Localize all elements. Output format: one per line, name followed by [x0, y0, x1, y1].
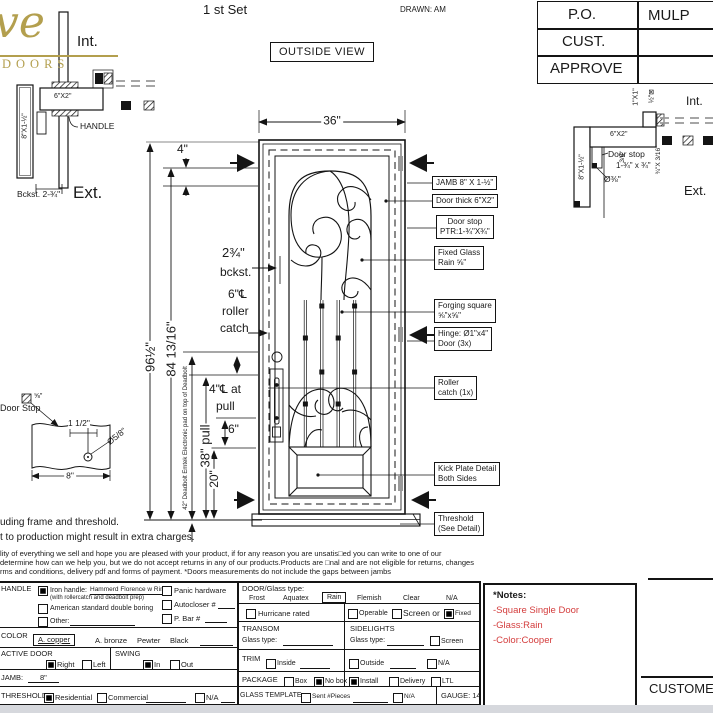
panic-label: Panic hardware: [174, 587, 226, 595]
color-pewter-option: Pewter: [137, 637, 160, 645]
trim-outside-label: Outside: [360, 660, 384, 667]
notes-box: *Notes: -Square Single Door -Glass:Rain …: [483, 583, 637, 707]
iron-handle-label: Iron handle:: [50, 587, 87, 594]
swing-in-label: In: [154, 661, 160, 669]
threshold-label: THRESHOLD: [1, 692, 47, 700]
operable-checkbox: [348, 609, 358, 619]
template-sent-checkbox: [301, 693, 311, 703]
iron-handle-value: Hammerd Florence w Rings: [90, 587, 171, 595]
american-boring-label: American standard double boring: [50, 605, 153, 612]
notes-line1: -Square Single Door: [493, 606, 579, 616]
sidelights-glass-label: Glass type:: [350, 637, 385, 644]
drawing-sheet: { "header": {"set_label": "1 st Set", "d…: [0, 0, 713, 713]
package-label: PACKAGE: [242, 676, 278, 684]
notes-title: *Notes:: [493, 591, 526, 601]
package-ltl-checkbox: [431, 677, 441, 687]
glass-frost-option: Frost: [249, 595, 265, 602]
sidelights-glass-blank: [387, 637, 424, 646]
glass-rain-option: Rain: [322, 592, 346, 603]
package-install-label: Install: [360, 678, 378, 685]
trim-inside-checkbox: [266, 659, 276, 669]
trim-na-label: N/A: [438, 660, 450, 667]
notes-line2: -Glass:Rain: [493, 621, 543, 631]
transom-label: TRANSOM: [242, 625, 280, 633]
package-nobox-label: No box: [325, 678, 347, 685]
autocloser-label: Autocloser #: [174, 601, 216, 609]
trim-inside-label: Inside: [277, 660, 296, 667]
glass-template-label: GLASS TEMPLATE: [240, 692, 302, 699]
glass-flemish-option: Flemish: [357, 595, 382, 602]
autocloser-checkbox: [162, 600, 172, 610]
threshold-commercial-checkbox: [97, 693, 107, 703]
screen-or-checkbox: [392, 609, 402, 619]
template-sent-label: Sent #Pieces: [312, 694, 350, 701]
package-nobox-checkbox: [314, 677, 324, 687]
color-label: COLOR: [1, 632, 28, 640]
sidelights-label: SIDELIGHTS: [350, 625, 395, 633]
hurricane-checkbox: [246, 609, 256, 619]
iron-handle-note: (with rollercatch and deadbolt prep): [50, 595, 144, 601]
color-blank: [200, 637, 233, 646]
package-delivery-label: Delivery: [400, 678, 425, 685]
threshold-na-checkbox: [195, 693, 205, 703]
screen-or-label: Screen or: [403, 609, 440, 618]
gauge-label: GAUGE: 14: [441, 692, 481, 700]
package-ltl-label: LTL: [442, 678, 454, 685]
threshold-commercial-label: Commercial: [108, 694, 148, 702]
fixed-checkbox: [444, 609, 454, 619]
customer-label: CUSTOMER: [649, 682, 713, 696]
sidelights-screen-checkbox: [430, 636, 440, 646]
template-na-label: N/A: [404, 694, 415, 701]
active-right-label: Right: [57, 661, 75, 669]
notes-line3: -Color:Cooper: [493, 636, 553, 646]
customer-top-rule: [648, 578, 713, 580]
other-handle-blank: [70, 617, 135, 626]
glass-na-option: N/A: [446, 595, 458, 602]
swing-out-checkbox: [170, 660, 180, 670]
jamb-label: JAMB:: [1, 674, 23, 682]
threshold-na-label: N/A: [206, 694, 219, 702]
swing-in-checkbox: [143, 660, 153, 670]
threshold-residential-checkbox: [44, 693, 54, 703]
threshold-commercial-blank: [146, 694, 186, 703]
pbar-blank: [205, 614, 227, 623]
color-bronze-option: A. bronze: [95, 637, 127, 645]
template-na-checkbox: [393, 693, 403, 703]
jamb-value: 8": [28, 674, 59, 683]
iron-handle-checkbox: [38, 586, 48, 596]
customer-signature-line: [641, 676, 713, 678]
transom-glass-label: Glass type:: [242, 637, 277, 644]
glass-type-label: DOOR/Glass type:: [242, 585, 304, 593]
other-handle-checkbox: [38, 617, 48, 627]
active-left-label: Left: [93, 661, 106, 669]
template-sent-blank: [353, 694, 388, 703]
pbar-label: P. Bar #: [174, 615, 200, 623]
sidelights-screen-label: Screen: [441, 638, 463, 645]
handle-label: HANDLE: [1, 585, 31, 593]
trim-label: TRIM: [242, 655, 260, 663]
trim-na-checkbox: [427, 659, 437, 669]
swing-out-label: Out: [181, 661, 193, 669]
trim-outside-checkbox: [349, 659, 359, 669]
active-left-checkbox: [82, 660, 92, 670]
package-delivery-checkbox: [389, 677, 399, 687]
threshold-na-blank: [221, 694, 235, 703]
threshold-residential-label: Residential: [55, 694, 92, 702]
package-install-checkbox: [349, 677, 359, 687]
swing-label: SWING: [115, 650, 140, 658]
bottom-strip: [0, 705, 713, 713]
active-door-label: ACTIVE DOOR: [1, 650, 53, 658]
trim-outside-blank: [390, 660, 416, 669]
american-boring-checkbox: [38, 604, 48, 614]
active-right-checkbox: [46, 660, 56, 670]
fixed-label: Fixed: [455, 611, 471, 618]
transom-glass-blank: [283, 637, 333, 646]
panic-checkbox: [162, 586, 172, 596]
glass-clear-option: Clear: [403, 595, 420, 602]
hurricane-label: Hurricane rated: [258, 610, 310, 618]
package-box-checkbox: [284, 677, 294, 687]
autocloser-blank: [218, 600, 235, 609]
pbar-checkbox: [162, 614, 172, 624]
package-box-label: Box: [295, 678, 307, 685]
other-handle-label: Other:: [50, 618, 69, 625]
trim-inside-blank: [300, 660, 330, 669]
operable-label: Operable: [359, 610, 388, 617]
color-copper-option: A. copper: [33, 634, 75, 646]
color-black-option: Black: [170, 637, 188, 645]
glass-aquatex-option: Aquatex: [283, 595, 309, 602]
